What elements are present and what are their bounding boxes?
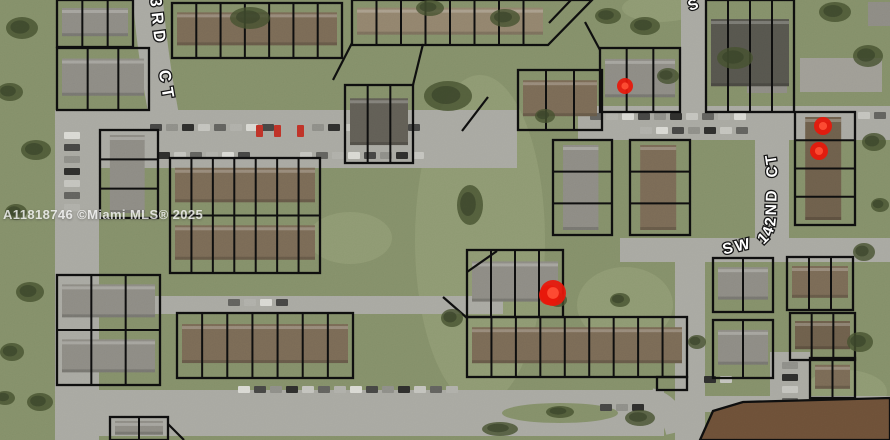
aerial-imagery: 3RD CTSW 142ND CTS bbox=[0, 0, 890, 440]
satellite-image: 3RD CTSW 142ND CTS bbox=[0, 0, 890, 440]
noise-texture bbox=[0, 0, 890, 440]
satellite-map[interactable]: 3RD CTSW 142ND CTS A11818746 ©Miami MLS®… bbox=[0, 0, 890, 440]
